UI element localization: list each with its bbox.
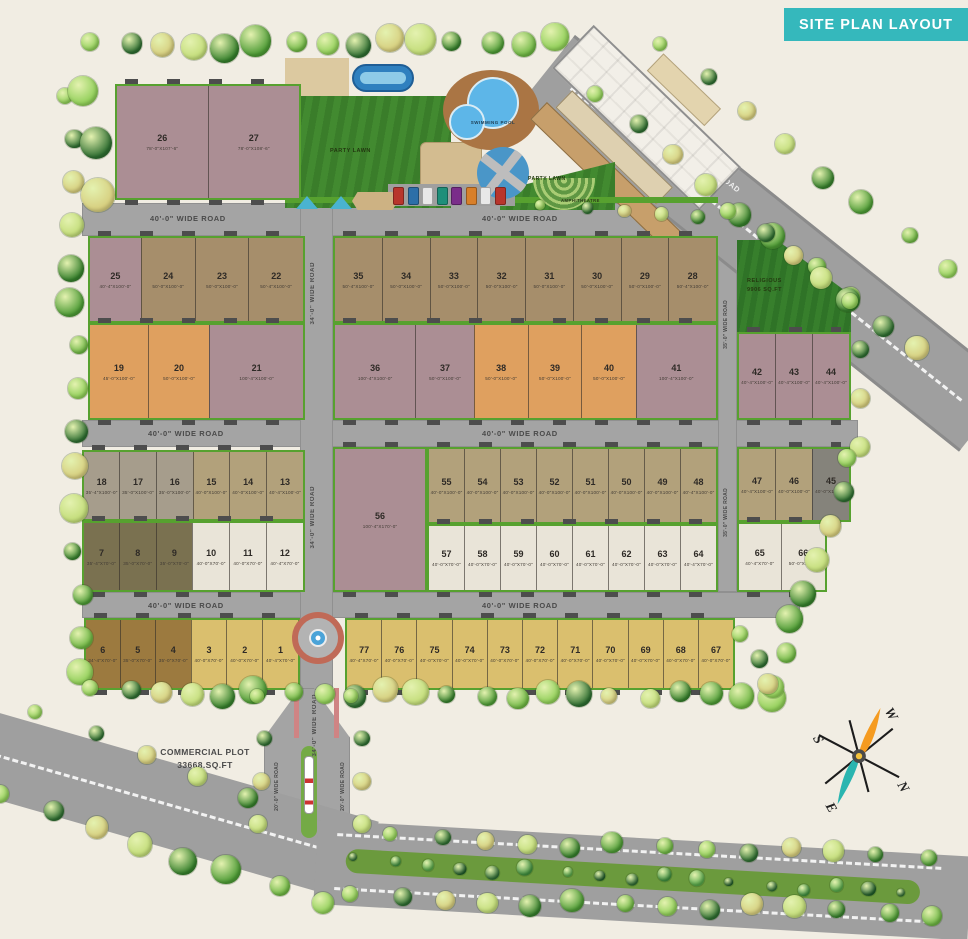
plot-number: 75 xyxy=(429,645,439,655)
tree-icon xyxy=(758,674,777,693)
tree-icon xyxy=(210,34,239,63)
plot-9[interactable]: 935'-0"X70'-0" xyxy=(156,523,193,590)
plot-number: 31 xyxy=(544,271,554,281)
tree-icon xyxy=(317,33,340,56)
tree-icon xyxy=(438,686,455,703)
tree-icon xyxy=(210,684,235,709)
tree-icon xyxy=(82,680,98,696)
plot-68[interactable]: 6840'-0"X70'-0" xyxy=(663,620,698,688)
plot-46[interactable]: 4640'-0"X100'-0" xyxy=(775,449,812,520)
road-edge-strip xyxy=(334,688,339,738)
road-label: 40'-0" WIDE ROAD xyxy=(148,601,224,610)
plot-dimensions: 100'-4"X170'-0" xyxy=(363,524,398,529)
plot-27[interactable]: 2778'-0"X108'-6" xyxy=(208,86,300,198)
compass-n: N xyxy=(894,778,912,796)
plot-58[interactable]: 5840'-0"X70'-0" xyxy=(464,526,500,590)
plot-dimensions: 50'-0"X100'-0" xyxy=(581,284,613,289)
plot-number: 2 xyxy=(242,645,247,655)
plot-number: 55 xyxy=(441,477,451,487)
plot-number: 8 xyxy=(135,548,140,558)
plot-dimensions: 45'-0"X100'-0" xyxy=(103,376,135,381)
plot-dimensions: 40'-0"X70'-0" xyxy=(648,562,677,567)
plot-44[interactable]: 4440'-4"X100'-0" xyxy=(812,334,849,418)
plot-40[interactable]: 4050'-0"X100'-0" xyxy=(581,325,635,418)
plot-dimensions: 40'-0"X100'-0" xyxy=(196,490,228,495)
tree-icon xyxy=(601,688,617,704)
plot-71[interactable]: 7140'-0"X70'-0" xyxy=(557,620,592,688)
plot-number: 28 xyxy=(688,271,698,281)
median-vehicle-icon xyxy=(304,756,314,814)
plot-50[interactable]: 5040'-0"X100'-0" xyxy=(608,449,644,522)
plot-number: 57 xyxy=(441,549,451,559)
plot-block-c1: 1835'-4"X100'-0"1735'-0"X100'-0"1635'-0"… xyxy=(82,450,305,521)
plot-35[interactable]: 3550'-4"X100'-0" xyxy=(335,238,382,321)
compass-s: S xyxy=(810,732,827,746)
road-label: 35'-0" WIDE ROAD xyxy=(723,488,729,537)
plot-number: 17 xyxy=(133,477,143,487)
tree-icon xyxy=(122,33,143,54)
tree-icon xyxy=(535,200,545,210)
car-icon xyxy=(451,187,462,205)
plot-number: 37 xyxy=(440,363,450,373)
tree-icon xyxy=(582,202,593,213)
road-label: 40'-0" WIDE ROAD xyxy=(148,429,224,438)
plot-block-d1: 5540'-0"X100'-0"5440'-0"X100'-0"5340'-0"… xyxy=(427,447,718,524)
tree-icon xyxy=(80,127,112,159)
plot-dimensions: 40'-0"X70'-0" xyxy=(230,658,259,663)
tree-icon xyxy=(732,626,748,642)
plot-55[interactable]: 5540'-0"X100'-0" xyxy=(429,449,464,522)
plot-dimensions: 50'-0"X100'-0" xyxy=(206,284,238,289)
plot-number: 21 xyxy=(252,363,262,373)
plot-number: 70 xyxy=(605,645,615,655)
tree-icon xyxy=(641,689,660,708)
car-icon xyxy=(393,187,404,205)
plot-dimensions: 50'-0"X100'-0" xyxy=(533,284,565,289)
plot-39[interactable]: 3950'-0"X100'-0" xyxy=(528,325,582,418)
plot-number: 20 xyxy=(174,363,184,373)
tree-icon xyxy=(517,859,533,875)
tree-icon xyxy=(587,86,603,102)
car-icon xyxy=(422,187,433,205)
plot-33[interactable]: 3350'-0"X100'-0" xyxy=(430,238,478,321)
tree-icon xyxy=(442,32,461,51)
plot-42[interactable]: 4240'-4"X100'-0" xyxy=(739,334,775,418)
tree-icon xyxy=(138,746,155,763)
tree-icon xyxy=(560,838,580,858)
plot-dimensions: 35'-0"X70'-0" xyxy=(159,658,188,663)
plot-number: 33 xyxy=(449,271,459,281)
tree-icon xyxy=(663,145,683,165)
tree-icon xyxy=(560,889,584,913)
plot-56[interactable]: 56100'-4"X170'-0" xyxy=(335,449,425,590)
plot-block-b1: 3550'-4"X100'-0"3450'-0"X100'-0"3350'-0"… xyxy=(333,236,718,323)
tree-icon xyxy=(405,24,436,55)
plot-25[interactable]: 2540'-4"X100'-0" xyxy=(90,238,141,321)
plot-59[interactable]: 5940'-0"X70'-0" xyxy=(500,526,536,590)
plot-dimensions: 50'-4"X100'-0" xyxy=(677,284,709,289)
plot-38[interactable]: 3850'-0"X100'-0" xyxy=(474,325,528,418)
tree-icon xyxy=(566,681,592,707)
tree-icon xyxy=(658,897,677,916)
plot-number: 51 xyxy=(585,477,595,487)
road-vertical-right xyxy=(718,236,737,592)
plot-block-r2: 4740'-4"X100'-0"4640'-0"X100'-0"4540'-0"… xyxy=(737,447,851,522)
road-label: 35'-0" WIDE ROAD xyxy=(723,300,729,349)
plot-47[interactable]: 4740'-4"X100'-0" xyxy=(739,449,775,520)
plot-dimensions: 35'-4"X70'-0" xyxy=(87,561,116,566)
tree-icon xyxy=(68,378,89,399)
plot-number: 56 xyxy=(375,511,385,521)
plot-dimensions: 100'-4"X100'-0" xyxy=(358,376,393,381)
tree-icon xyxy=(86,816,109,839)
tree-icon xyxy=(391,856,401,866)
tree-icon xyxy=(810,267,832,289)
tree-icon xyxy=(939,260,956,277)
plot-dimensions: 35'-0"X70'-0" xyxy=(123,658,152,663)
plot-49[interactable]: 4940'-0"X100'-0" xyxy=(644,449,680,522)
plot-number: 73 xyxy=(500,645,510,655)
plot-51[interactable]: 5140'-0"X100'-0" xyxy=(572,449,608,522)
tree-icon xyxy=(454,862,467,875)
plot-dimensions: 40'-4"X70'-0" xyxy=(270,561,299,566)
car-icon xyxy=(408,187,419,205)
amphitheatre-label: AMPHITHEATRE xyxy=(533,198,628,203)
plot-dimensions: 34'-4"X70'-0" xyxy=(88,658,117,663)
plot-number: 34 xyxy=(401,271,411,281)
tree-icon xyxy=(655,207,668,220)
plot-number: 29 xyxy=(640,271,650,281)
plot-3[interactable]: 340'-0"X70'-0" xyxy=(191,620,227,688)
plot-52[interactable]: 5240'-0"X100'-0" xyxy=(536,449,572,522)
tree-icon xyxy=(563,867,573,877)
tree-icon xyxy=(211,855,240,884)
plot-number: 64 xyxy=(693,549,703,559)
plot-36[interactable]: 36100'-4"X100'-0" xyxy=(335,325,415,418)
tree-icon xyxy=(695,174,717,196)
tree-icon xyxy=(741,893,763,915)
plot-16[interactable]: 1635'-0"X100'-0" xyxy=(156,452,193,519)
plot-number: 54 xyxy=(477,477,487,487)
plot-4[interactable]: 435'-0"X70'-0" xyxy=(155,620,191,688)
plot-dimensions: 40'-4"X70'-0" xyxy=(266,658,295,663)
plot-21[interactable]: 21100'-4"X100'-0" xyxy=(209,325,303,418)
tree-icon xyxy=(181,683,204,706)
plot-number: 36 xyxy=(370,363,380,373)
plot-26[interactable]: 2678'-0"X107'-6" xyxy=(117,86,208,198)
plot-dimensions: 50'-0"X100'-0" xyxy=(593,376,625,381)
plot-number: 11 xyxy=(243,548,253,558)
religious-label: RELIGIOUS xyxy=(747,278,782,284)
plot-10[interactable]: 1040'-0"X70'-0" xyxy=(192,523,229,590)
plot-dimensions: 40'-0"X70'-0" xyxy=(525,658,554,663)
tree-icon xyxy=(169,848,196,875)
compass-rose: W S N E xyxy=(806,696,912,812)
plot-number: 63 xyxy=(657,549,667,559)
tree-icon xyxy=(353,773,370,790)
plot-29[interactable]: 2950'-0"X100'-0" xyxy=(621,238,669,321)
plot-number: 71 xyxy=(570,645,580,655)
plot-28[interactable]: 2850'-4"X100'-0" xyxy=(668,238,716,321)
tree-icon xyxy=(73,585,93,605)
plot-number: 38 xyxy=(496,363,506,373)
plot-dimensions: 78'-0"X107'-6" xyxy=(146,146,178,151)
plot-number: 67 xyxy=(711,645,721,655)
tree-icon xyxy=(44,801,64,821)
plot-70[interactable]: 7040'-0"X70'-0" xyxy=(592,620,627,688)
plot-number: 12 xyxy=(280,548,290,558)
plot-block-b26: 2678'-0"X107'-6"2778'-0"X108'-6" xyxy=(115,84,301,200)
tree-icon xyxy=(349,853,357,861)
plot-62[interactable]: 6240'-0"X70'-0" xyxy=(608,526,644,590)
plot-number: 24 xyxy=(163,271,173,281)
tree-icon xyxy=(700,900,720,920)
tree-icon xyxy=(775,134,795,154)
tree-icon xyxy=(70,627,93,650)
site-plan: 80'-0" WIDE ROAD 40'-0" WIDE ROAD 40'-0"… xyxy=(0,0,968,939)
compass-e: E xyxy=(822,799,840,812)
tree-icon xyxy=(285,683,303,701)
tree-icon xyxy=(477,832,494,849)
plot-64[interactable]: 6440'-4"X70'-0" xyxy=(680,526,716,590)
tree-icon xyxy=(861,881,877,897)
tree-icon xyxy=(344,689,358,703)
plot-number: 9 xyxy=(172,548,177,558)
plot-20[interactable]: 2050'-0"X100'-0" xyxy=(148,325,209,418)
title-banner: SITE PLAN LAYOUT xyxy=(784,8,968,41)
tree-icon xyxy=(181,34,207,60)
plot-number: 44 xyxy=(826,367,836,377)
tree-icon xyxy=(518,835,537,854)
plot-41[interactable]: 41100'-4"X100'-0" xyxy=(636,325,716,418)
plot-12[interactable]: 1240'-4"X70'-0" xyxy=(266,523,303,590)
plot-32[interactable]: 3250'-0"X100'-0" xyxy=(477,238,525,321)
plot-number: 30 xyxy=(592,271,602,281)
plot-dimensions: 40'-0"X70'-0" xyxy=(385,658,414,663)
plot-number: 50 xyxy=(621,477,631,487)
tree-icon xyxy=(383,827,397,841)
plot-dimensions: 40'-4"X100'-0" xyxy=(683,490,715,495)
plot-34[interactable]: 3450'-0"X100'-0" xyxy=(382,238,430,321)
plot-13[interactable]: 1340'-4"X100'-0" xyxy=(266,452,303,519)
plot-number: 60 xyxy=(549,549,559,559)
plot-15[interactable]: 1540'-0"X100'-0" xyxy=(193,452,230,519)
plot-dimensions: 50'-0"X100'-0" xyxy=(390,284,422,289)
plot-73[interactable]: 7340'-0"X70'-0" xyxy=(487,620,522,688)
plot-dimensions: 78'-0"X108'-6" xyxy=(238,146,270,151)
tree-icon xyxy=(701,69,717,85)
tree-icon xyxy=(700,682,723,705)
plot-dimensions: 40'-0"X70'-0" xyxy=(612,562,641,567)
tree-icon xyxy=(151,33,174,56)
plot-19[interactable]: 1945'-0"X100'-0" xyxy=(90,325,148,418)
tree-icon xyxy=(253,773,270,790)
tree-icon xyxy=(394,888,412,906)
plot-69[interactable]: 6940'-0"X70'-0" xyxy=(628,620,663,688)
plot-number: 15 xyxy=(206,477,216,487)
plot-dimensions: 40'-0"X70'-0" xyxy=(490,658,519,663)
plot-48[interactable]: 4840'-4"X100'-0" xyxy=(680,449,716,522)
plot-23[interactable]: 2350'-0"X100'-0" xyxy=(195,238,249,321)
plot-5[interactable]: 535'-0"X70'-0" xyxy=(120,620,155,688)
road-bottom-right xyxy=(313,820,968,939)
tree-icon xyxy=(618,205,630,217)
plot-dimensions: 40'-0"X70'-0" xyxy=(504,562,533,567)
tree-icon xyxy=(626,873,639,886)
plot-number: 23 xyxy=(217,271,227,281)
tree-icon xyxy=(81,33,99,51)
plot-dimensions: 40'-0"X70'-0" xyxy=(233,561,262,566)
plot-dimensions: 40'-4"X100'-0" xyxy=(269,490,301,495)
plot-14[interactable]: 1440'-0"X100'-0" xyxy=(229,452,266,519)
tree-icon xyxy=(699,841,716,858)
plot-dimensions: 40'-0"X70'-0" xyxy=(468,562,497,567)
plot-57[interactable]: 5740'-0"X70'-0" xyxy=(429,526,464,590)
swimming-pool-label: SWIMMING POOL xyxy=(433,120,553,125)
plot-dimensions: 40'-0"X100'-0" xyxy=(467,490,499,495)
plot-43[interactable]: 4340'-4"X100'-0" xyxy=(775,334,812,418)
tree-icon xyxy=(812,167,834,189)
tree-icon xyxy=(62,453,88,479)
plot-dimensions: 40'-0"X70'-0" xyxy=(420,658,449,663)
plot-65[interactable]: 6540'-4"X70'-0" xyxy=(739,524,781,590)
tree-icon xyxy=(60,213,84,237)
plot-dimensions: 40'-0"X70'-0" xyxy=(596,658,625,663)
plot-22[interactable]: 2250'-4"X100'-0" xyxy=(248,238,303,321)
plot-dimensions: 50'-4"X100'-0" xyxy=(260,284,292,289)
tree-icon xyxy=(422,859,434,871)
plot-dimensions: 40'-0"X70'-0" xyxy=(666,658,695,663)
plot-37[interactable]: 3750'-0"X100'-0" xyxy=(415,325,473,418)
plot-number: 32 xyxy=(497,271,507,281)
tree-icon xyxy=(767,881,778,892)
tree-icon xyxy=(790,581,816,607)
plot-75[interactable]: 7540'-0"X70'-0" xyxy=(416,620,451,688)
plot-24[interactable]: 2450'-0"X100'-0" xyxy=(141,238,195,321)
plot-7[interactable]: 735'-4"X70'-0" xyxy=(84,523,119,590)
plot-number: 22 xyxy=(271,271,281,281)
tree-icon xyxy=(312,892,334,914)
tree-icon xyxy=(89,726,105,742)
tree-icon xyxy=(436,891,455,910)
tree-icon xyxy=(658,867,672,881)
tree-icon xyxy=(536,680,560,704)
plot-dimensions: 40'-4"X70'-0" xyxy=(745,561,774,566)
plot-31[interactable]: 3150'-0"X100'-0" xyxy=(525,238,573,321)
plot-number: 59 xyxy=(513,549,523,559)
plot-dimensions: 40'-4"X70'-0" xyxy=(350,658,379,663)
tree-icon xyxy=(507,688,529,710)
tree-icon xyxy=(342,886,358,902)
plot-dimensions: 40'-0"X70'-0" xyxy=(194,658,223,663)
plot-number: 18 xyxy=(97,477,107,487)
plot-74[interactable]: 7440'-0"X70'-0" xyxy=(452,620,487,688)
plot-dimensions: 40'-4"X100'-0" xyxy=(815,380,847,385)
plot-number: 25 xyxy=(110,271,120,281)
plot-number: 6 xyxy=(100,645,105,655)
plot-dimensions: 50'-0"X100'-0" xyxy=(485,376,517,381)
page-title: SITE PLAN LAYOUT xyxy=(799,17,953,33)
plot-number: 1 xyxy=(278,645,283,655)
road-label: 40'-0" WIDE ROAD xyxy=(482,601,558,610)
plot-number: 40 xyxy=(604,363,614,373)
plot-block-d56: 56100'-4"X170'-0" xyxy=(333,447,427,592)
plot-77[interactable]: 7740'-4"X70'-0" xyxy=(347,620,381,688)
plot-number: 47 xyxy=(752,476,762,486)
road-label: 34'-0" WIDE ROAD xyxy=(310,486,316,549)
tree-icon xyxy=(902,228,917,243)
tree-icon xyxy=(482,32,504,54)
plot-63[interactable]: 6340'-0"X70'-0" xyxy=(644,526,680,590)
plot-dimensions: 40'-0"X100'-0" xyxy=(503,490,535,495)
plot-number: 16 xyxy=(170,477,180,487)
plot-block-a1: 2540'-4"X100'-0"2450'-0"X100'-0"2350'-0"… xyxy=(88,236,305,323)
road-label: 40'-0" WIDE ROAD xyxy=(150,214,226,223)
plot-number: 69 xyxy=(641,645,651,655)
tree-icon xyxy=(188,767,207,786)
plot-54[interactable]: 5440'-0"X100'-0" xyxy=(464,449,500,522)
tree-icon xyxy=(820,515,842,537)
compass-w: W xyxy=(882,705,901,724)
tree-icon xyxy=(478,687,497,706)
plot-number: 45 xyxy=(826,476,836,486)
plot-18[interactable]: 1835'-4"X100'-0" xyxy=(84,452,119,519)
tree-icon xyxy=(315,684,335,704)
plot-61[interactable]: 6140'-0"X70'-0" xyxy=(572,526,608,590)
tree-icon xyxy=(485,865,500,880)
plot-dimensions: 40'-0"X70'-0" xyxy=(455,658,484,663)
plot-dimensions: 40'-0"X70'-0" xyxy=(540,562,569,567)
tree-icon xyxy=(346,33,371,58)
tree-icon xyxy=(58,255,85,282)
plot-dimensions: 50'-0"X100'-0" xyxy=(539,376,571,381)
plot-dimensions: 40'-4"X100'-0" xyxy=(100,284,132,289)
tree-icon xyxy=(402,679,429,706)
plot-dimensions: 50'-0"X100'-0" xyxy=(163,376,195,381)
plot-number: 13 xyxy=(280,477,290,487)
plot-number: 10 xyxy=(206,548,216,558)
tree-icon xyxy=(64,543,81,560)
tree-icon xyxy=(55,288,84,317)
plot-72[interactable]: 7240'-0"X70'-0" xyxy=(522,620,557,688)
religious-size-label: 9906 SQ.FT xyxy=(747,287,782,293)
plot-67[interactable]: 6740'-0"X70'-0" xyxy=(698,620,733,688)
plot-11[interactable]: 1140'-0"X70'-0" xyxy=(229,523,266,590)
tree-icon xyxy=(435,830,451,846)
tree-icon xyxy=(720,203,736,219)
roundabout xyxy=(292,612,344,664)
party-lawn-2-label: PARTY LAWN xyxy=(528,176,566,182)
tree-icon xyxy=(805,548,829,572)
tree-icon xyxy=(751,650,769,668)
tree-icon xyxy=(512,32,537,57)
plot-60[interactable]: 6040'-0"X70'-0" xyxy=(536,526,572,590)
tree-icon xyxy=(828,901,845,918)
plot-17[interactable]: 1735'-0"X100'-0" xyxy=(119,452,156,519)
plot-dimensions: 40'-0"X100'-0" xyxy=(232,490,264,495)
plot-30[interactable]: 3050'-0"X100'-0" xyxy=(573,238,621,321)
plot-dimensions: 40'-4"X100'-0" xyxy=(778,380,810,385)
tree-icon xyxy=(849,190,873,214)
plot-dimensions: 40'-0"X100'-0" xyxy=(611,490,643,495)
tree-icon xyxy=(128,832,153,857)
plot-number: 43 xyxy=(789,367,799,377)
plot-dimensions: 40'-0"X70'-0" xyxy=(197,561,226,566)
plot-53[interactable]: 5340'-0"X100'-0" xyxy=(500,449,536,522)
plot-number: 76 xyxy=(394,645,404,655)
tree-icon xyxy=(838,449,856,467)
plot-8[interactable]: 835'-0"X70'-0" xyxy=(119,523,156,590)
